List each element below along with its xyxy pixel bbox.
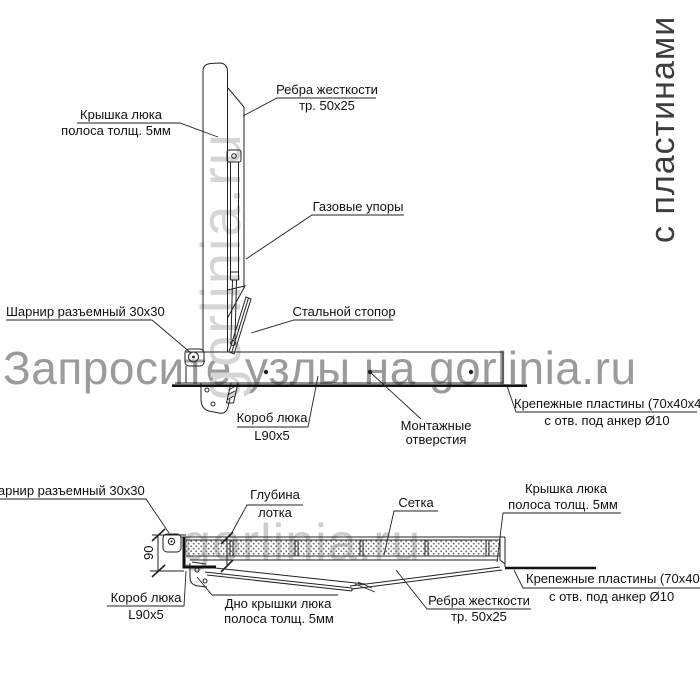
label-ribs2-line1: Ребра жесткости [424, 594, 534, 608]
label-hinge-top: Шарнир разъемный 30x30 [6, 305, 166, 319]
label-depth-line2: лотка [246, 506, 304, 520]
label-holes-line1: Монтажные [393, 419, 479, 433]
mounting-hole [264, 370, 267, 373]
label-box-line1: Короб люка [232, 411, 312, 425]
label-depth-line1: Глубина [246, 488, 304, 502]
label-gas-struts: Газовые упоры [306, 200, 410, 214]
gas-strut [227, 150, 241, 346]
label-box-line2: L90x5 [232, 429, 312, 443]
label-plates-line1: Крепежные пластины (70x40x4) [514, 397, 700, 411]
dimension-90: 90 [141, 546, 156, 560]
label-cover-line2: полоса толщ. 5мм [48, 124, 184, 138]
strut-bracket-lower [201, 383, 230, 413]
mounting-hole [469, 370, 472, 373]
label-cover2-line2: полоса толщ. 5мм [501, 498, 625, 512]
label-cover-line1: Крышка люка [62, 108, 180, 122]
label-bottomplate-line1: Дно крышки люка [222, 597, 334, 611]
label-holes-line2: отверстия [393, 433, 479, 447]
label-stopper: Стальной стопор [290, 305, 398, 319]
label-box2-line1: Короб люка [106, 591, 186, 605]
label-plates2-line1: Крепежные пластины (70x40x4) [526, 572, 700, 586]
folded-mechanism [190, 562, 502, 592]
label-hinge-bottom: Шарнир разъемный 30x30 [0, 484, 156, 498]
label-ribs2-line2: тр. 50x25 [424, 610, 534, 624]
tray-section [181, 537, 505, 560]
label-plates2-line2: с отв. под анкер Ø10 [549, 590, 689, 604]
cover-right-edge [500, 537, 505, 567]
label-box2-line2: L90x5 [106, 608, 186, 622]
top-view-linework [0, 0, 700, 460]
side-caption: с пластинами [646, 3, 680, 243]
label-mesh: Сетка [392, 496, 440, 510]
top-leader-lines [6, 98, 697, 427]
label-ribs-line2: тр. 50x25 [268, 99, 386, 113]
label-bottomplate-line2: полоса толщ. 5мм [218, 612, 340, 626]
label-cover2-line1: Крышка люка [512, 482, 620, 496]
hatch-box [175, 352, 503, 383]
hinge-assembly [163, 534, 181, 552]
label-plates-line2: с отв. под анкер Ø10 [540, 414, 674, 428]
technical-drawing-page: Запросите узлы на gorlinia.ru gorlinia.r… [0, 0, 700, 700]
hatch-cover-open [203, 63, 244, 352]
label-ribs-line1: Ребра жесткости [268, 83, 386, 97]
